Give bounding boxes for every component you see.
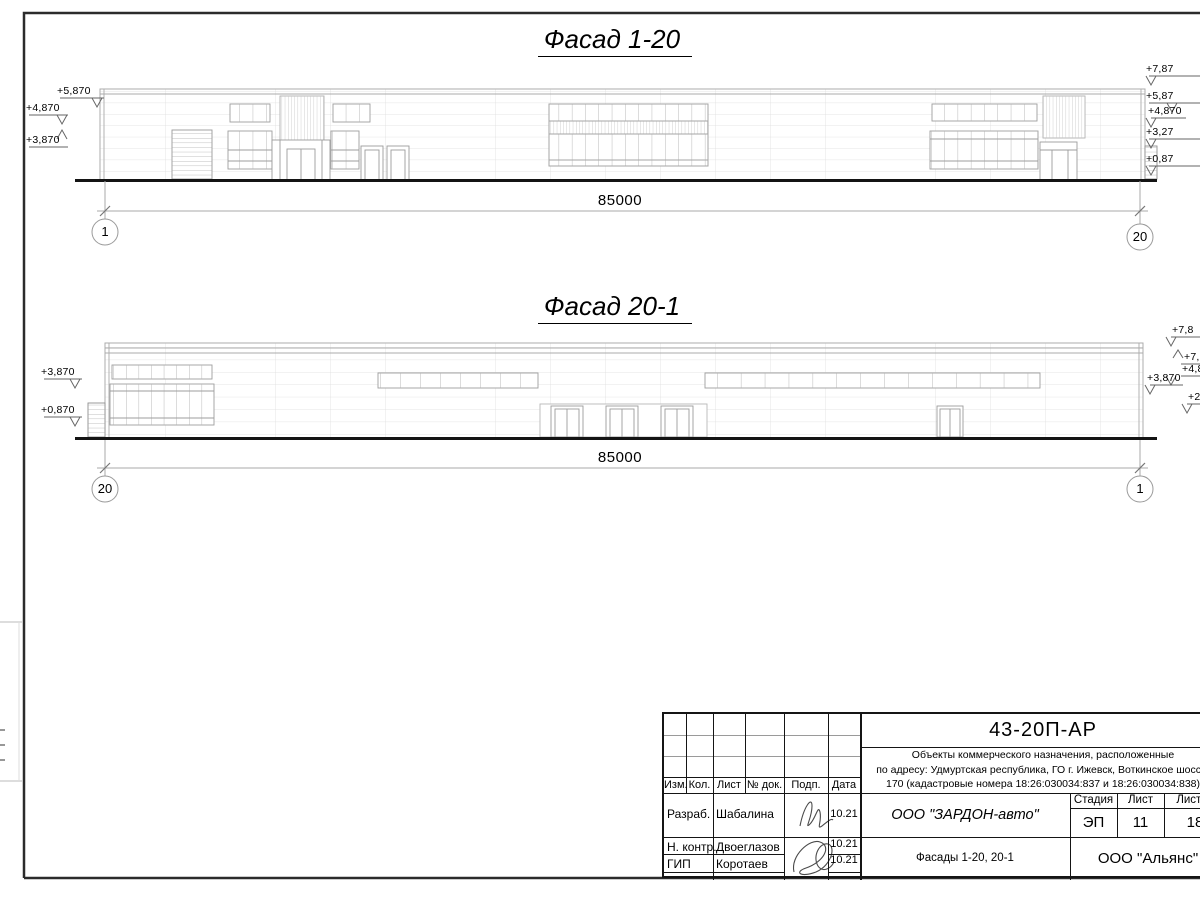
col-header-doc: № док. [745,777,784,793]
row-date: 10.21 [828,808,860,820]
facade1-title: Фасад 1-20 [538,24,692,57]
row-date: 10.21 [828,838,860,850]
elevation-mark: +4,8 [1182,363,1200,375]
elevation-mark: +2,1 [1188,391,1200,403]
elevation-mark: +0,87 [1146,153,1174,165]
org-name: ООО "Альянс" [1070,837,1200,880]
sheets-total-value: 18 [1164,808,1200,837]
elevation-mark: +5,870 [57,85,91,97]
facade2-axis-right: 1 [1127,476,1153,502]
row-name: Коротаев [716,857,784,871]
stage-label: Стадия [1070,793,1117,808]
facade2-dimension-text: 85000 [560,449,680,466]
elevation-mark: +7,87 [1146,63,1174,75]
facade-20-1-drawing [88,343,1143,438]
facade1-title-wrap: Фасад 1-20 [415,24,815,57]
elevation-mark: +4,870 [26,102,60,114]
facade2-axis-left: 20 [92,476,118,502]
drawing-sheet: { "facade1": { "title": "Фасад 1-20", "d… [0,0,1200,900]
sheet-no-value: 11 [1117,808,1164,837]
facade1-axis-left: 1 [92,219,118,245]
elevation-mark: +3,870 [41,366,75,378]
elevation-mark: +7, [1184,351,1200,363]
facade2-title-wrap: Фасад 20-1 [415,291,815,324]
elevation-mark: +7,8 [1172,324,1194,336]
facade1-dimension-text: 85000 [560,192,680,209]
row-role: Разраб. [667,807,713,821]
col-header-izm: Изм. [664,777,686,793]
title-block: 43-20П-АР Объекты коммерческого назначен… [662,712,1200,878]
project-description: Объекты коммерческого назначения, распол… [860,748,1200,792]
row-role: ГИП [667,857,713,871]
sheets-total-label: Листов [1164,793,1200,808]
elevation-mark: +5,87 [1146,90,1174,102]
elevation-mark: +3,870 [26,134,60,146]
row-date: 10.21 [828,854,860,866]
elevation-mark: +4,870 [1148,105,1182,117]
project-description-line2: по адресу: Удмуртская республика, ГО г. … [860,763,1200,778]
facade-1-20-drawing [100,89,1157,180]
row-role: Н. контр. [667,840,713,854]
doc-code: 43-20П-АР [860,714,1200,747]
sheet-no-label: Лист [1117,793,1164,808]
elevation-mark: +3,27 [1146,126,1174,138]
stage-value: ЭП [1070,808,1117,837]
elevation-mark: +3,870 [1147,372,1181,384]
project-description-line1: Объекты коммерческого назначения, распол… [860,748,1200,763]
facade1-axis-right: 20 [1127,224,1153,250]
col-header-list: Лист [713,777,745,793]
row-name: Шабалина [716,807,784,821]
col-header-date: Дата [828,777,860,793]
col-header-kol: Кол. [686,777,713,793]
facade2-title: Фасад 20-1 [538,291,692,324]
row-name: Двоеглазов [716,840,784,854]
client-name: ООО "ЗАРДОН-авто" [860,793,1070,837]
col-header-sign: Подп. [784,777,828,793]
project-description-line3: 170 (кадастровые номера 18:26:030034:837… [860,777,1200,792]
sheet-name: Фасады 1-20, 20-1 [860,837,1070,880]
elevation-mark: +0,870 [41,404,75,416]
